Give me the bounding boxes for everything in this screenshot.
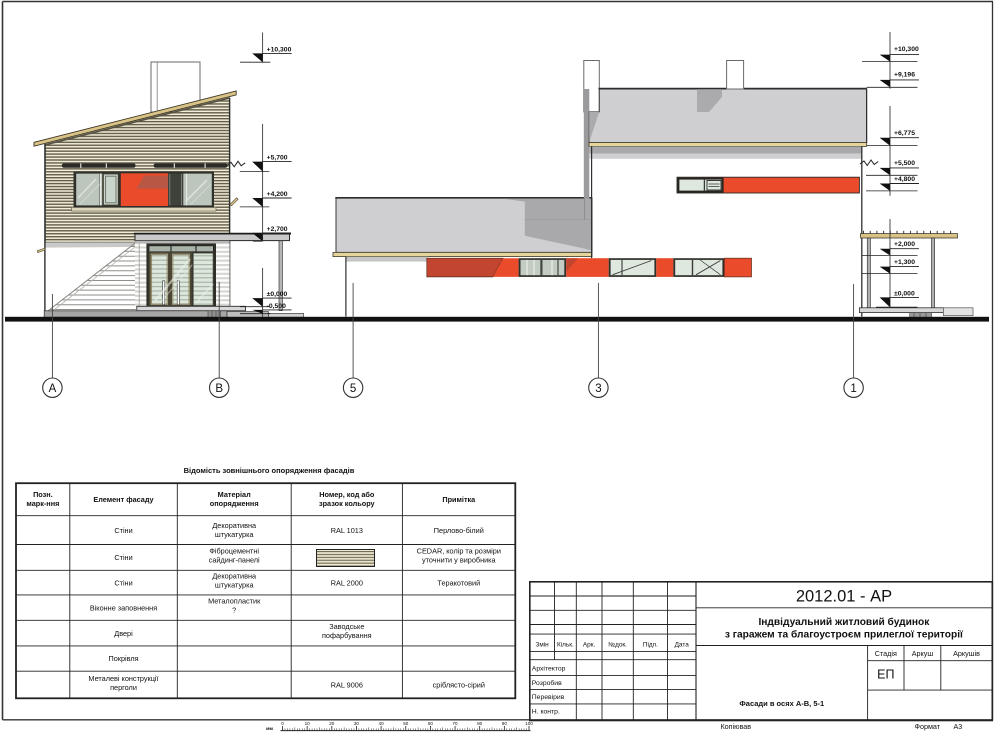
svg-text:+4,800: +4,800 xyxy=(894,176,915,183)
svg-text:80: 80 xyxy=(477,721,483,726)
svg-text:5: 5 xyxy=(350,383,356,395)
svg-text:+4,200: +4,200 xyxy=(267,191,288,198)
svg-text:Підп.: Підп. xyxy=(643,640,658,648)
svg-text:Матеріал: Матеріал xyxy=(218,490,251,499)
svg-text:Позн.: Позн. xyxy=(33,490,53,499)
svg-text:Арк.: Арк. xyxy=(583,641,596,648)
svg-text:Фіброцементні: Фіброцементні xyxy=(209,546,259,555)
svg-text:зразок кольору: зразок кольору xyxy=(319,499,376,508)
svg-text:100: 100 xyxy=(525,721,533,726)
svg-text:Аркуш: Аркуш xyxy=(912,649,934,658)
svg-text:Номер, код або: Номер, код або xyxy=(319,490,375,499)
svg-text:Стіни: Стіни xyxy=(114,526,132,535)
svg-text:Дата: Дата xyxy=(675,641,690,648)
svg-text:±0,000: ±0,000 xyxy=(894,290,915,297)
svg-text:Відомість зовнішнього опорядже: Відомість зовнішнього опорядження фасаді… xyxy=(184,466,355,475)
svg-text:Фасади в осях А-В, 5-1: Фасади в осях А-В, 5-1 xyxy=(739,699,824,708)
svg-text:+6,775: +6,775 xyxy=(894,130,915,137)
svg-text:RAL 9006: RAL 9006 xyxy=(331,680,363,689)
svg-text:з гаражем та благоустроєм прил: з гаражем та благоустроєм прилеглої тери… xyxy=(725,628,964,640)
svg-text:+5,700: +5,700 xyxy=(267,155,288,162)
svg-text:+10,300: +10,300 xyxy=(267,46,292,53)
svg-text:Декоративна: Декоративна xyxy=(212,572,257,581)
svg-text:Формат: Формат xyxy=(915,722,941,731)
svg-text:1: 1 xyxy=(850,383,856,395)
svg-text:CEDAR, колір та розміри: CEDAR, колір та розміри xyxy=(417,546,501,555)
svg-text:Індвідуальний житловий будинок: Індвідуальний житловий будинок xyxy=(758,616,930,628)
svg-text:Архітектор: Архітектор xyxy=(532,664,566,672)
svg-text:40: 40 xyxy=(379,721,385,726)
svg-text:RAL 1013: RAL 1013 xyxy=(331,526,363,535)
svg-text:20: 20 xyxy=(329,721,335,726)
svg-text:+2,000: +2,000 xyxy=(894,241,915,248)
svg-text:Двері: Двері xyxy=(114,629,133,638)
svg-text:Перевірив: Перевірив xyxy=(532,693,565,701)
svg-text:Кільк.: Кільк. xyxy=(557,640,574,648)
svg-text:B: B xyxy=(215,383,223,395)
svg-text:10: 10 xyxy=(305,721,311,726)
svg-text:Стадія: Стадія xyxy=(875,649,897,658)
svg-text:Перлово-білий: Перлово-білий xyxy=(434,526,484,535)
svg-text:Стіни: Стіни xyxy=(114,553,132,562)
svg-text:Розробив: Розробив xyxy=(532,679,562,687)
svg-text:Н. контр.: Н. контр. xyxy=(532,708,560,715)
svg-text:Змін: Змін xyxy=(535,640,549,648)
svg-text:штукатурка: штукатурка xyxy=(215,581,255,590)
svg-text:А3: А3 xyxy=(954,722,963,731)
svg-text:ЕП: ЕП xyxy=(877,668,894,682)
svg-text:Металопластик: Металопластик xyxy=(208,597,261,606)
svg-text:±0,000: ±0,000 xyxy=(267,291,288,298)
svg-text:+10,300: +10,300 xyxy=(894,46,919,53)
svg-text:+1,300: +1,300 xyxy=(894,259,915,266)
svg-text:сайдинг-панелі: сайдинг-панелі xyxy=(209,555,260,564)
svg-text:0: 0 xyxy=(281,721,284,726)
svg-text:-0,500: -0,500 xyxy=(267,303,286,310)
svg-text:Елемент фасаду: Елемент фасаду xyxy=(93,495,154,504)
svg-text:Аркушів: Аркушів xyxy=(953,649,980,658)
svg-text:3: 3 xyxy=(595,383,601,395)
svg-text:A: A xyxy=(49,383,57,395)
svg-text:штукатурка: штукатурка xyxy=(215,530,255,539)
svg-text:60: 60 xyxy=(428,721,434,726)
svg-text:перголи: перголи xyxy=(110,683,137,692)
svg-text:+9,196: +9,196 xyxy=(894,71,915,78)
svg-text:70: 70 xyxy=(452,721,458,726)
svg-text:уточнити у виробника: уточнити у виробника xyxy=(422,555,497,564)
svg-text:50: 50 xyxy=(403,721,409,726)
svg-text:Копіював: Копіював xyxy=(721,722,752,731)
svg-text:№док.: №док. xyxy=(608,641,627,648)
svg-text:+2,700: +2,700 xyxy=(267,226,288,233)
svg-text:RAL 2000: RAL 2000 xyxy=(331,578,363,587)
svg-text:?: ? xyxy=(232,606,236,615)
svg-text:Примітка: Примітка xyxy=(442,495,476,504)
svg-text:пофарбування: пофарбування xyxy=(322,631,372,640)
svg-text:+5,500: +5,500 xyxy=(894,160,915,167)
svg-text:мм: мм xyxy=(266,726,273,731)
svg-text:30: 30 xyxy=(354,721,360,726)
svg-text:Декоративна: Декоративна xyxy=(212,521,257,530)
svg-text:90: 90 xyxy=(502,721,508,726)
svg-text:Заводське: Заводське xyxy=(329,622,364,631)
svg-text:2012.01 - АР: 2012.01 - АР xyxy=(796,588,892,606)
svg-text:марк-ння: марк-ння xyxy=(26,499,59,508)
svg-text:Стіни: Стіни xyxy=(114,578,132,587)
svg-text:опорядження: опорядження xyxy=(210,499,259,508)
svg-text:Теракотовий: Теракотовий xyxy=(437,578,480,587)
svg-text:сріблясто-сірий: сріблясто-сірий xyxy=(433,680,485,689)
svg-text:Покрівля: Покрівля xyxy=(108,654,138,663)
svg-text:Віконне заповнення: Віконне заповнення xyxy=(90,603,157,612)
svg-text:Металеві конструкції: Металеві конструкції xyxy=(88,674,158,683)
